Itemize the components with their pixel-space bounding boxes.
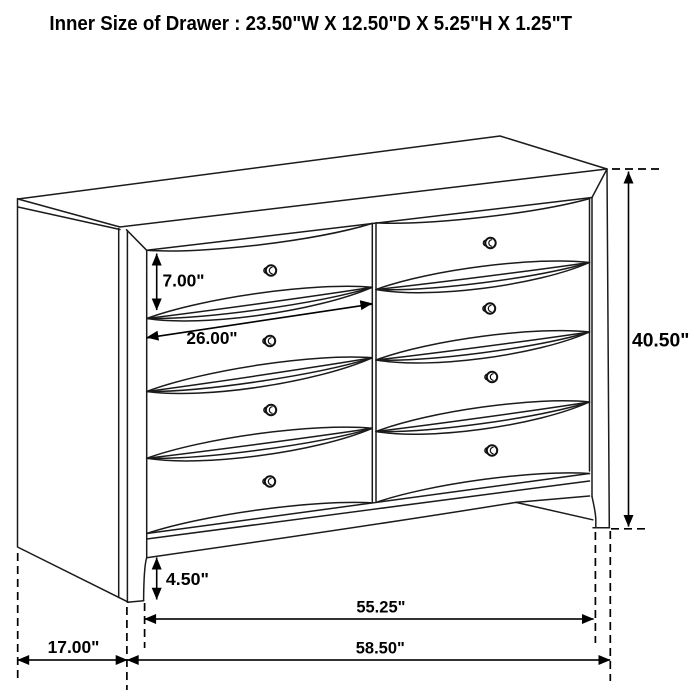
svg-text:4.50": 4.50" [166,569,209,589]
svg-text:58.50": 58.50" [356,640,405,658]
svg-text:26.00": 26.00" [186,328,237,348]
svg-text:Inner Size of Drawer : 23.50"W: Inner Size of Drawer : 23.50"W X 12.50"D… [49,13,572,35]
svg-text:55.25": 55.25" [356,599,405,617]
svg-text:7.00": 7.00" [162,271,204,291]
svg-text:40.50": 40.50" [632,330,689,351]
svg-text:17.00": 17.00" [48,637,100,657]
